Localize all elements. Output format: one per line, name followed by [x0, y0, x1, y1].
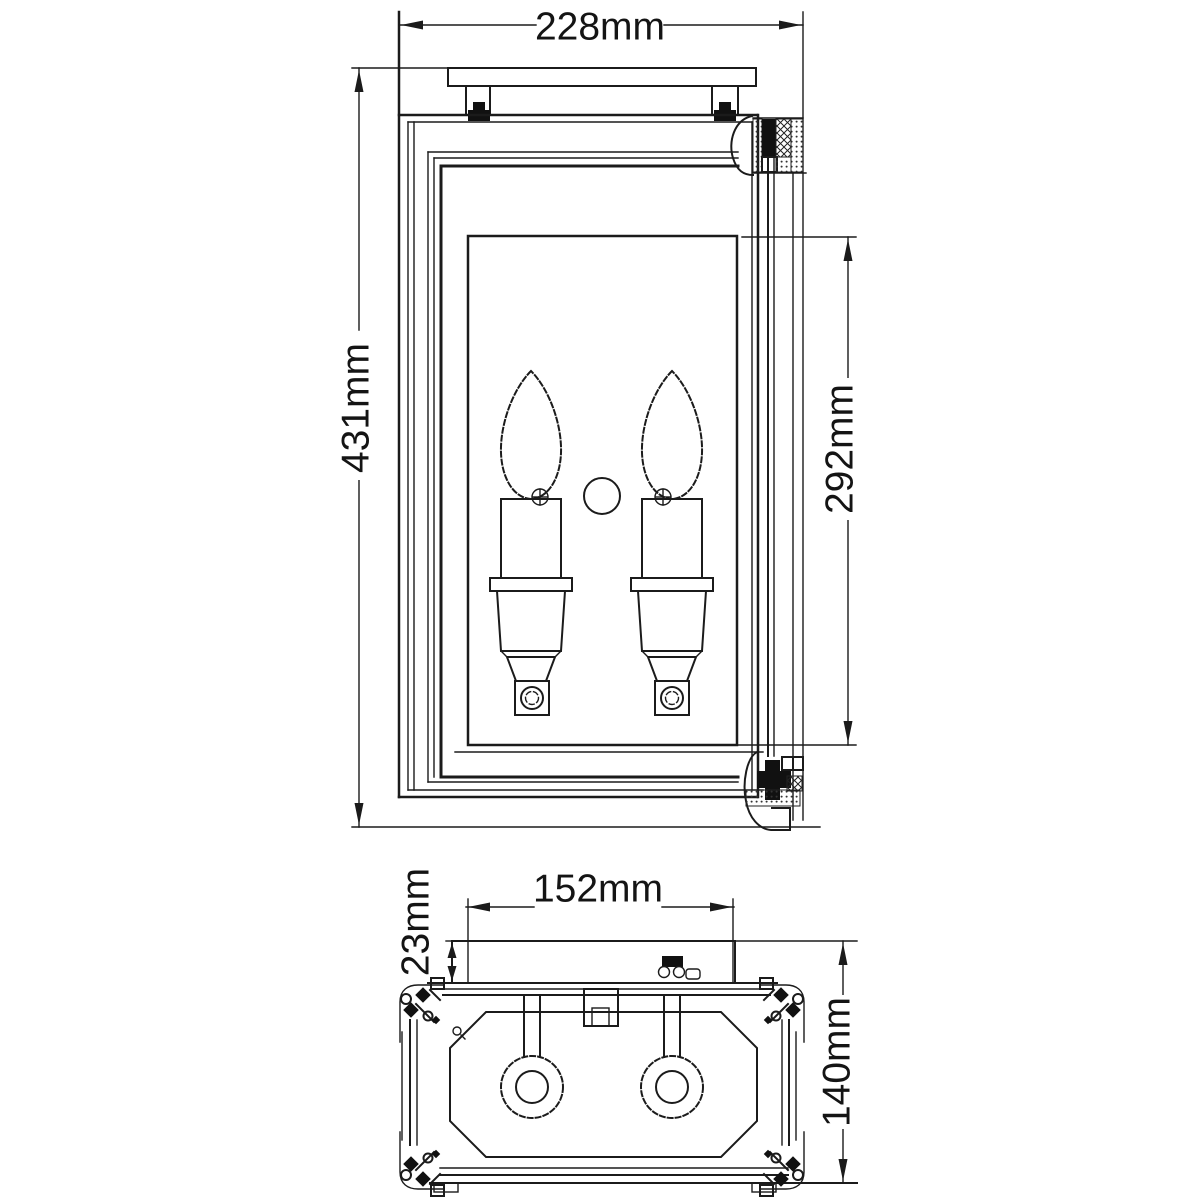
chamfered-pan	[450, 1012, 757, 1157]
flame-bulb-icon	[501, 371, 561, 499]
dim-label-152: 152mm	[533, 868, 663, 911]
socket-taper	[648, 657, 696, 681]
drawing-canvas: 228mm 431mm 292mm	[0, 0, 1200, 1200]
dim-glass-height: 292mm	[737, 237, 862, 745]
socket-taper	[507, 657, 555, 681]
body-plan	[400, 978, 857, 1196]
flame-bulb-icon	[642, 371, 702, 499]
wall-plate	[448, 68, 756, 121]
wiring-connector	[659, 956, 701, 979]
socket-body	[497, 591, 565, 651]
candle-sleeve	[501, 499, 561, 578]
door-glass-panel	[455, 236, 763, 752]
backplate	[446, 941, 735, 983]
arrow-down-icon	[844, 721, 853, 743]
dim-label-292: 292mm	[819, 384, 862, 514]
latch-detail-bottom	[745, 752, 803, 830]
arrow-left-icon	[401, 21, 423, 30]
mount-nut-right	[714, 102, 736, 121]
top-view: 152mm 23mm 140mm	[395, 868, 860, 1197]
dim-label-140: 140mm	[816, 997, 859, 1127]
dim-label-23: 23mm	[395, 868, 438, 976]
candle-left	[490, 371, 572, 715]
arrow-left-icon	[468, 903, 490, 912]
arrow-up-icon	[355, 70, 364, 92]
candle-flange	[631, 578, 713, 591]
front-view: 228mm 431mm 292mm	[334, 5, 862, 830]
dim-label-228: 228mm	[535, 6, 665, 49]
arrow-down-icon	[355, 803, 364, 825]
socket-body	[638, 591, 706, 651]
center-knob	[584, 478, 620, 514]
dim-label-431: 431mm	[335, 343, 378, 473]
dim-backplate-depth: 23mm	[395, 868, 457, 981]
arrow-up-icon	[839, 943, 848, 965]
arrow-right-icon	[779, 21, 801, 30]
arrow-right-icon	[710, 903, 732, 912]
arrow-up-icon	[448, 943, 457, 958]
arrow-down-icon	[839, 1159, 848, 1181]
arrow-up-icon	[844, 239, 853, 261]
candle-sleeve	[642, 499, 702, 578]
socket-circle-right	[641, 1056, 703, 1118]
socket-circle-left	[501, 1056, 563, 1118]
lantern-frame	[399, 12, 803, 820]
technical-drawing-page: 228mm 431mm 292mm	[0, 0, 1200, 1200]
mount-nut-left	[468, 102, 490, 121]
candle-right	[631, 371, 713, 715]
dim-overall-width: 228mm	[399, 5, 803, 49]
dim-overall-height: 431mm	[334, 68, 820, 827]
dim-overall-depth: 140mm	[735, 941, 859, 1183]
candle-flange	[490, 578, 572, 591]
arrow-down-icon	[448, 966, 457, 981]
dim-backplate-width: 152mm	[466, 868, 734, 983]
